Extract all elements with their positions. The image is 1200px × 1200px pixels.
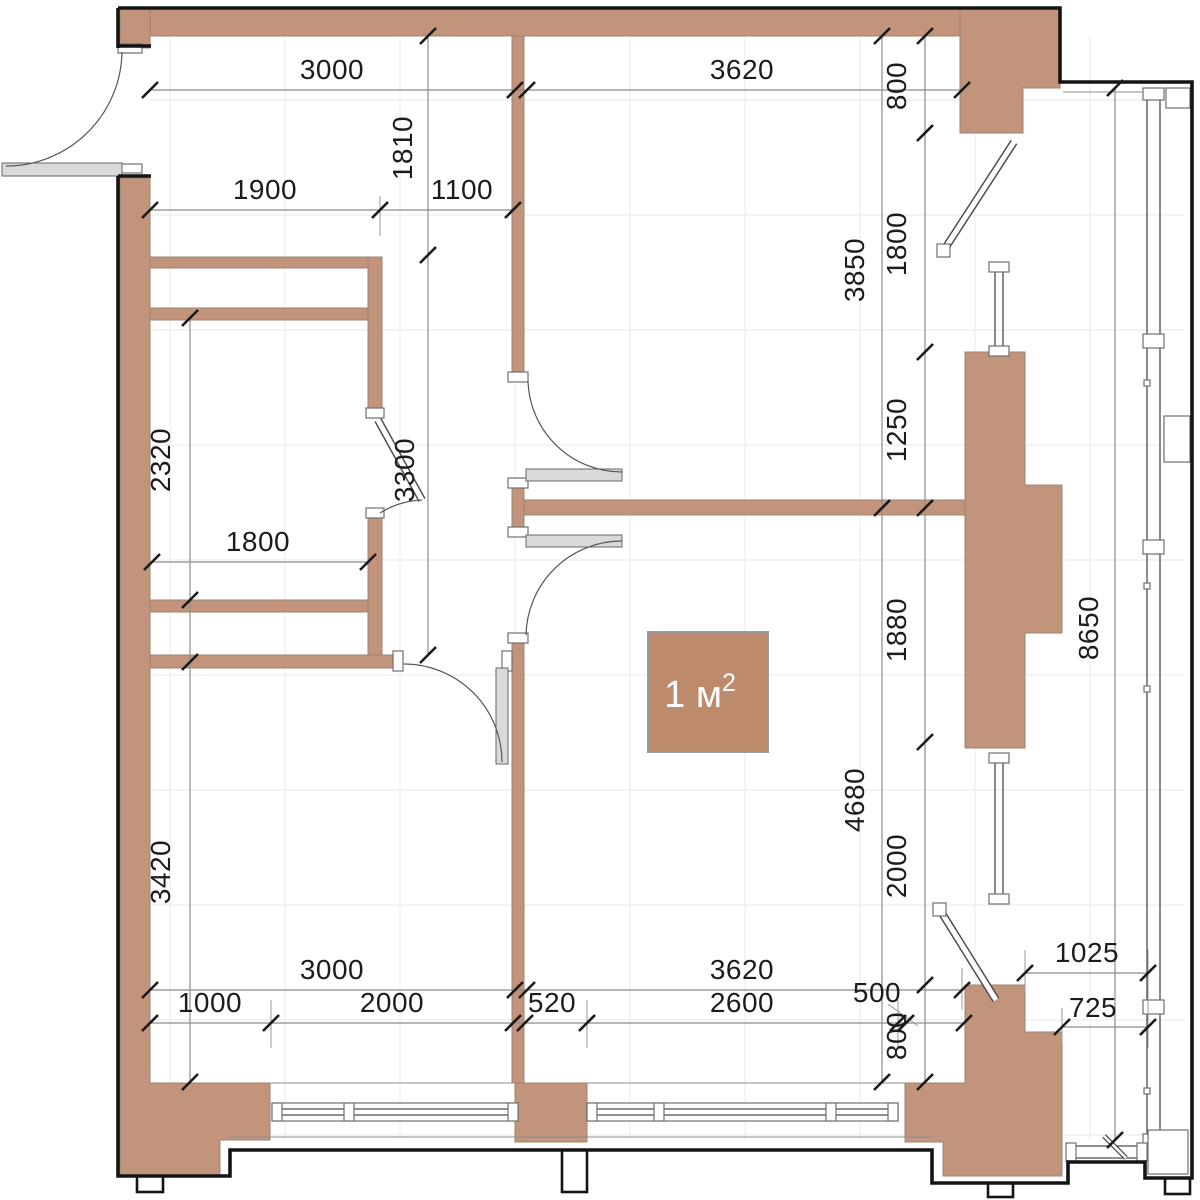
- dim-label: 4680: [839, 768, 870, 832]
- dim-label: 1800: [226, 526, 290, 557]
- wall-top-right-block: [960, 9, 1060, 133]
- window-right-post: [826, 1103, 836, 1121]
- dim-label: 800: [881, 62, 912, 110]
- facade-pillar: [988, 1183, 1013, 1197]
- sash-handle: [1144, 1088, 1150, 1094]
- window-right-post: [888, 1103, 898, 1121]
- wall-right-pylon-bottom: [905, 985, 1062, 1176]
- dim-label: 1880: [881, 598, 912, 662]
- dim-label: 800: [881, 1012, 912, 1060]
- wall-bottom-mid-block: [515, 1083, 587, 1142]
- window-right-post: [587, 1103, 597, 1121]
- dim-label: 1800: [881, 212, 912, 276]
- dim-label: 3000: [300, 954, 364, 985]
- wall-right-pylon-mid: [965, 352, 1062, 748]
- entrance-door: [2, 44, 142, 176]
- hall-door-lower: [508, 527, 622, 643]
- dim-label: 725: [1069, 992, 1117, 1023]
- wall-middle-horizontal: [524, 500, 965, 515]
- area-label-sup: 2: [722, 669, 736, 697]
- dim-label: 1250: [881, 398, 912, 462]
- facade-pillar: [1165, 1178, 1190, 1194]
- window-right-post: [654, 1103, 664, 1121]
- wall-left: [120, 178, 270, 1176]
- wall-closet-b: [150, 308, 368, 320]
- hall-door-upper: [508, 372, 622, 488]
- balcony-side-box: [1164, 416, 1190, 462]
- dim-label: 520: [528, 987, 576, 1018]
- dim-label: 500: [853, 977, 901, 1008]
- wall-closet-right-upper: [368, 257, 382, 415]
- wall-center-stub: [512, 486, 524, 529]
- dim-label: 3850: [839, 238, 870, 302]
- balcony-mullion: [1143, 540, 1164, 554]
- sash-handle: [1144, 686, 1150, 692]
- bottom-room-door: [393, 651, 512, 764]
- area-label: 1 м: [664, 674, 722, 716]
- floor-plan-canvas: 3000 3620 1900 1100 1810 3300 2320 1800 …: [0, 0, 1200, 1200]
- window-left-post: [344, 1103, 354, 1121]
- dim-label: 1900: [233, 174, 297, 205]
- balcony-mullion: [1143, 1000, 1164, 1014]
- facade-pillar: [562, 1150, 587, 1192]
- dim-label: 2000: [360, 987, 424, 1018]
- dim-label: 2000: [881, 834, 912, 898]
- sash-handle: [1144, 380, 1150, 386]
- window-left: [272, 1103, 518, 1121]
- wall-entry-upper: [120, 9, 150, 48]
- dim-label: 3620: [710, 954, 774, 985]
- wall-top: [120, 9, 962, 36]
- balcony-corner-box: [1148, 1130, 1188, 1174]
- wall-closet-right-lower: [368, 511, 382, 668]
- facade-pillar: [137, 1176, 163, 1192]
- balcony-corner-frame: [1166, 88, 1190, 108]
- dim-label: 1100: [431, 174, 493, 205]
- dim-label: 2600: [710, 987, 774, 1018]
- window-left-post: [508, 1103, 518, 1121]
- window-right: [587, 1103, 898, 1121]
- dim-label: 8650: [1073, 596, 1104, 660]
- dim-label: 2320: [145, 428, 176, 492]
- dim-label: 1000: [178, 987, 242, 1018]
- dim-label: 1810: [387, 116, 418, 180]
- dim-label: 1025: [1055, 937, 1119, 968]
- dim-label: 3420: [145, 840, 176, 904]
- floor-plan: 3000 3620 1900 1100 1810 3300 2320 1800 …: [0, 0, 1200, 1200]
- window-left-post: [272, 1103, 282, 1121]
- dim-label: 3000: [300, 54, 364, 85]
- wall-closet-a: [150, 257, 382, 268]
- balcony-mullion: [1143, 334, 1164, 348]
- dim-label: 3620: [710, 54, 774, 85]
- sash-handle: [1144, 583, 1150, 589]
- dim-label: 3300: [389, 438, 420, 502]
- area-marker: 1 м2: [648, 632, 768, 752]
